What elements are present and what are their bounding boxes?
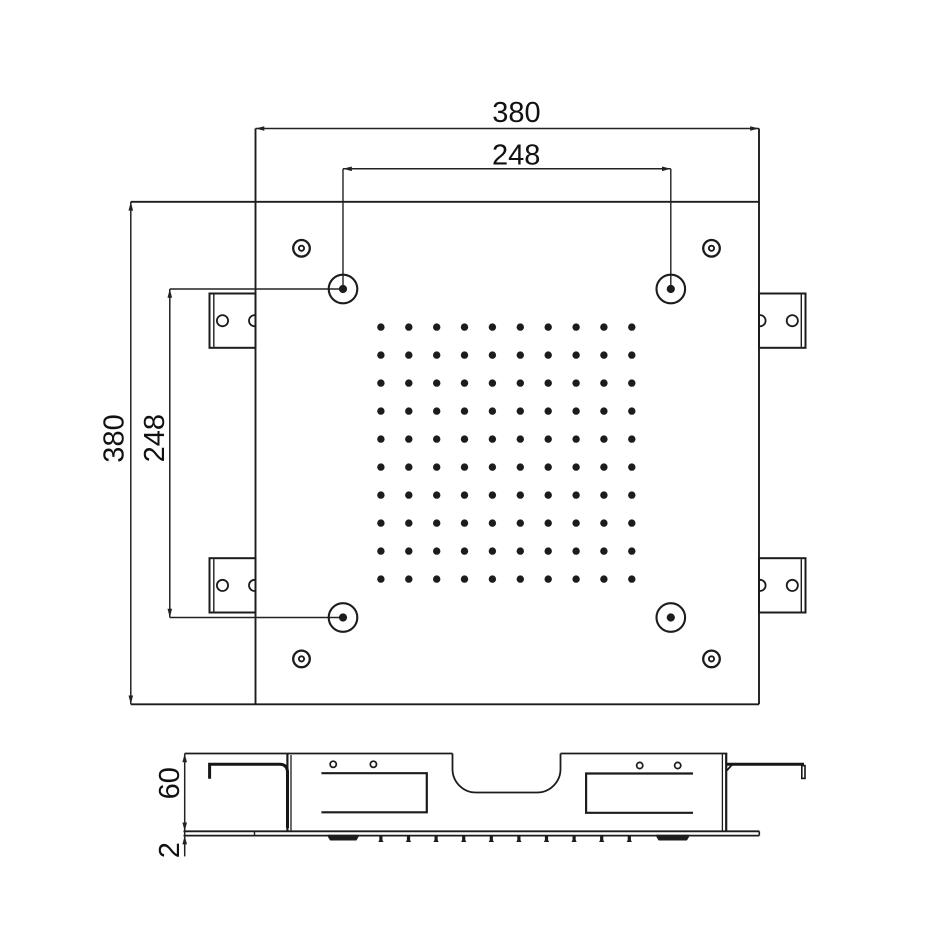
svg-text:60: 60	[154, 767, 186, 799]
svg-text:2: 2	[154, 842, 186, 858]
svg-text:380: 380	[99, 414, 131, 462]
svg-text:248: 248	[492, 139, 540, 171]
svg-text:380: 380	[492, 97, 540, 129]
svg-text:248: 248	[139, 414, 171, 462]
